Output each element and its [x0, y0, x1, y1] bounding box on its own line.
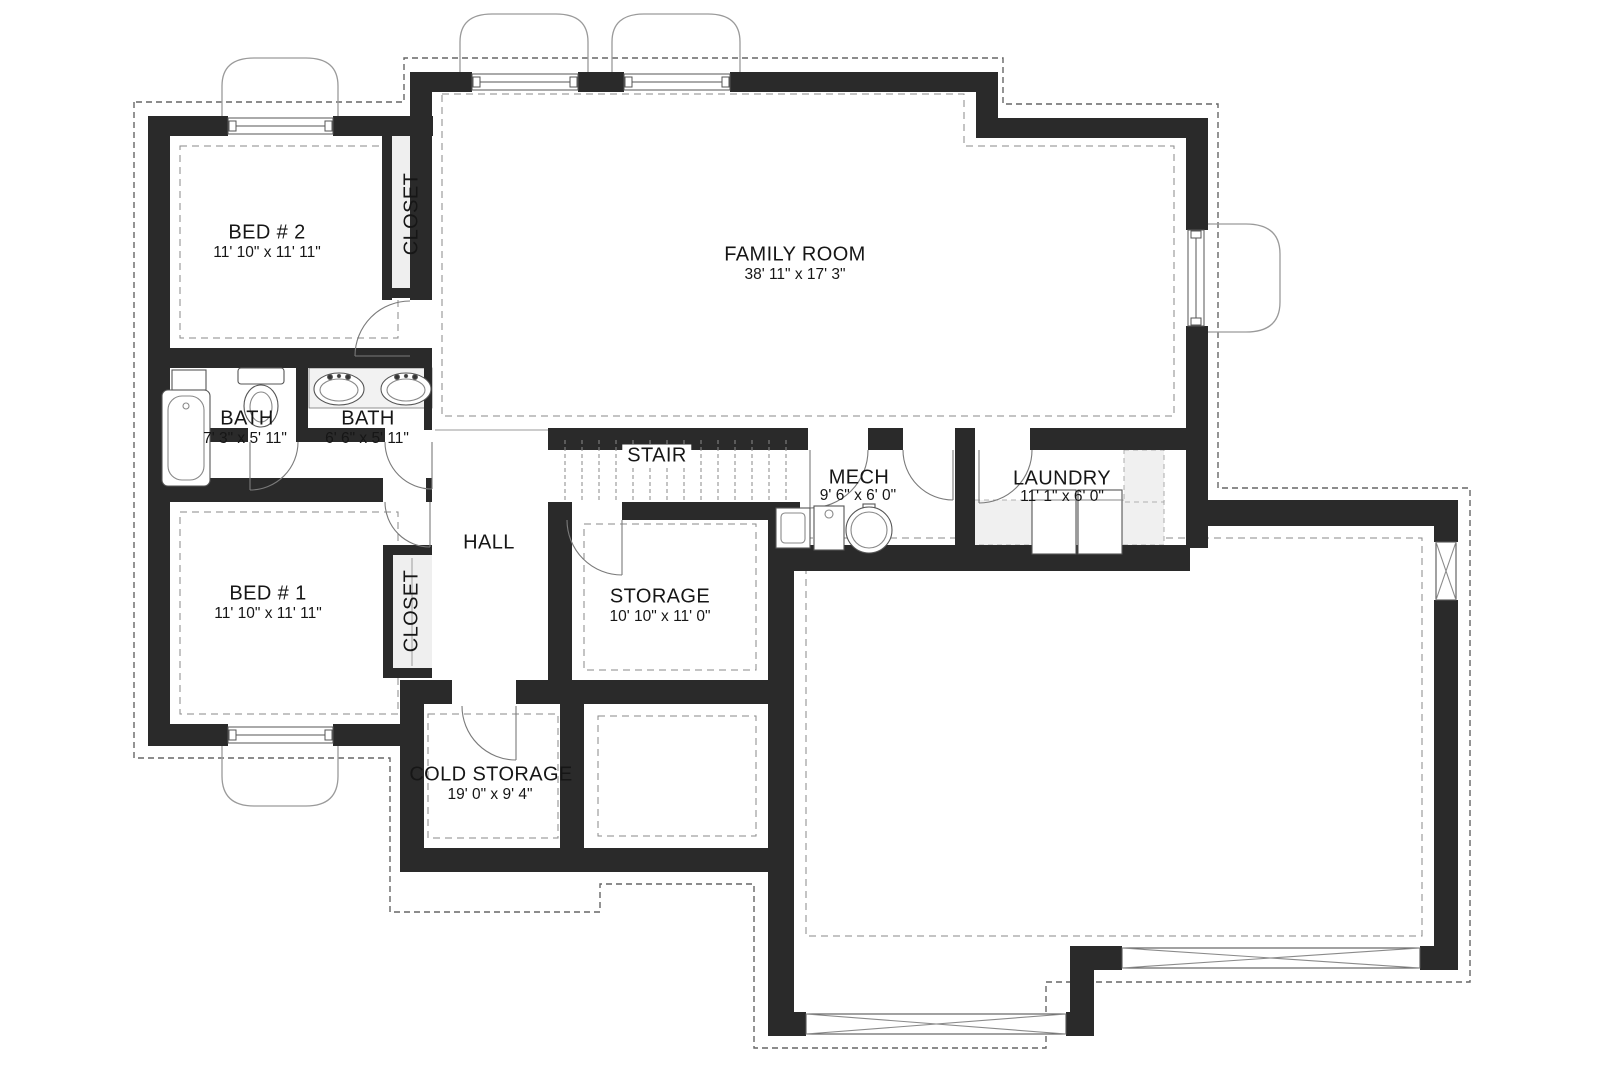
window-well-bed1	[222, 746, 338, 806]
room-label-closet-bed1: CLOSET	[401, 570, 424, 652]
wall-garage-left	[768, 502, 794, 1035]
walls	[148, 72, 1458, 1036]
door-bath-2	[385, 442, 432, 489]
room-dims-bed2: 11' 10" x 11' 11"	[213, 244, 320, 262]
window-bed2	[228, 118, 333, 134]
door-mech-hall	[903, 450, 953, 500]
door-bed2	[355, 301, 410, 356]
room-dims-cold-storage: 19' 0" x 9' 4"	[447, 786, 532, 804]
room-dims-bath-1: 7' 3" x 5' 11"	[203, 430, 287, 448]
room-label-hall: HALL	[463, 532, 515, 555]
window-family-right	[1188, 230, 1204, 326]
room-dims-storage: 10' 10" x 11' 0"	[609, 608, 710, 626]
window-family-2	[624, 74, 730, 90]
garage-side-window	[1436, 542, 1456, 600]
window-family-1	[472, 74, 578, 90]
basement-floor-plan: BED # 2 11' 10" x 11' 11" CLOSET FAMILY …	[0, 0, 1600, 1067]
room-label-closet-bed2: CLOSET	[401, 173, 424, 255]
room-dims-bed1: 11' 10" x 11' 11"	[214, 605, 321, 623]
room-label-cold-storage: COLD STORAGE	[409, 764, 572, 787]
window-well-family-right	[1208, 224, 1280, 332]
window-well-family-1	[460, 14, 588, 72]
door-bed1	[385, 502, 430, 547]
light-fills	[309, 136, 1164, 668]
room-label-storage: STORAGE	[610, 586, 710, 609]
room-label-bed1: BED # 1	[229, 583, 306, 606]
floor-plan-drawing	[0, 0, 1600, 1067]
garage-door-left	[806, 1014, 1066, 1034]
laundry-counter-side	[1124, 450, 1164, 502]
room-dims-bath-2: 6' 6" x 5' 11"	[325, 430, 409, 448]
room-dims-family-room: 38' 11" x 17' 3"	[744, 266, 845, 284]
linen-closet	[172, 370, 206, 390]
water-heater-fixture	[846, 504, 892, 553]
room-label-bed2: BED # 2	[228, 222, 305, 245]
window-well-family-2	[612, 14, 740, 72]
room-dims-mech: 9' 6" x 6' 0"	[820, 487, 896, 505]
room-label-bath-1: BATH	[220, 408, 273, 431]
furnace-fixture	[814, 506, 844, 550]
room-dims-laundry: 11' 1" x 6' 0"	[1020, 488, 1104, 506]
garage-door-right	[1122, 948, 1420, 968]
window-well-bed2	[222, 58, 338, 116]
room-label-bath-2: BATH	[341, 408, 394, 431]
door-storage	[567, 520, 622, 575]
window-bed1	[228, 727, 333, 743]
room-label-stair: STAIR	[622, 445, 691, 468]
utility-sink-fixture	[776, 508, 810, 548]
room-label-family-room: FAMILY ROOM	[724, 244, 865, 267]
garage-doors	[806, 542, 1456, 1034]
